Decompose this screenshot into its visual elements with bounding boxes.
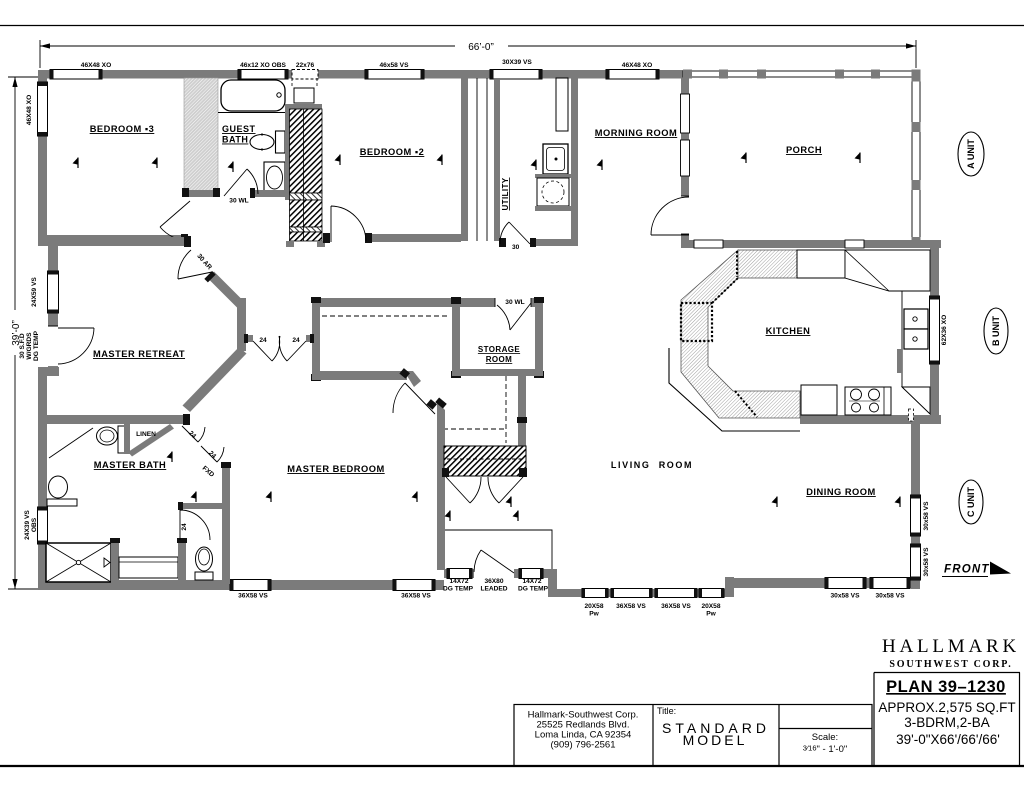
svg-text:24: 24 xyxy=(292,337,300,344)
svg-text:30x58 VS: 30x58 VS xyxy=(876,593,906,600)
svg-text:SOUTHWEST CORP.: SOUTHWEST CORP. xyxy=(889,659,1012,670)
svg-text:30 WL: 30 WL xyxy=(505,299,524,306)
svg-text:MASTER RETREAT: MASTER RETREAT xyxy=(93,349,185,359)
svg-text:ROOM: ROOM xyxy=(486,355,513,364)
svg-text:PORCH: PORCH xyxy=(786,145,822,155)
svg-text:20X58: 20X58 xyxy=(701,603,720,610)
svg-text:BATH: BATH xyxy=(222,135,248,145)
svg-text:66’-0”: 66’-0” xyxy=(468,42,494,53)
svg-text:C UNIT: C UNIT xyxy=(966,487,976,517)
svg-text:UTILITY: UTILITY xyxy=(501,177,510,210)
svg-text:Pw: Pw xyxy=(706,611,716,618)
svg-text:(909) 796-2561: (909) 796-2561 xyxy=(551,740,616,751)
svg-text:46x58 VS: 46x58 VS xyxy=(380,62,410,69)
svg-text:46X48 XO: 46X48 XO xyxy=(81,62,111,69)
svg-text:3-BDRM,2-BA: 3-BDRM,2-BA xyxy=(904,715,990,730)
svg-text:DG TEMP: DG TEMP xyxy=(33,330,40,361)
svg-text:24X59 VS: 24X59 VS xyxy=(31,277,38,307)
svg-text:Title:: Title: xyxy=(657,706,676,716)
svg-text:30 WL: 30 WL xyxy=(229,198,248,205)
svg-text:30X39 VS: 30X39 VS xyxy=(502,59,532,66)
svg-text:OBS: OBS xyxy=(31,517,38,532)
svg-text:GUEST: GUEST xyxy=(222,124,256,134)
svg-text:HALLMARK: HALLMARK xyxy=(882,636,1020,657)
svg-text:39'-0"X66'/66'/66': 39'-0"X66'/66'/66' xyxy=(896,732,1000,747)
svg-text:FRONT: FRONT xyxy=(944,564,990,576)
svg-text:KITCHEN: KITCHEN xyxy=(766,326,811,336)
svg-text:36X58 VS: 36X58 VS xyxy=(616,603,646,610)
svg-text:APPROX.2,575 SQ.FT: APPROX.2,575 SQ.FT xyxy=(878,700,1015,715)
svg-text:30x58 VS: 30x58 VS xyxy=(923,501,930,531)
svg-text:36X58 VS: 36X58 VS xyxy=(238,593,268,600)
svg-text:Scale:: Scale: xyxy=(812,732,838,743)
svg-text:30: 30 xyxy=(512,244,520,251)
svg-text:36X80: 36X80 xyxy=(484,578,503,585)
svg-text:MORNING ROOM: MORNING ROOM xyxy=(595,128,677,138)
svg-text:30 S.F.D: 30 S.F.D xyxy=(19,333,26,359)
svg-text:36X58 VS: 36X58 VS xyxy=(401,593,431,600)
svg-text:22x76: 22x76 xyxy=(296,62,315,69)
svg-text:14X72: 14X72 xyxy=(449,578,468,585)
svg-text:LIVING ROOM: LIVING ROOM xyxy=(611,460,693,470)
svg-text:BEDROOM ▪2: BEDROOM ▪2 xyxy=(360,147,425,157)
svg-text:24: 24 xyxy=(181,523,188,531)
svg-text:STORAGE: STORAGE xyxy=(478,345,520,354)
svg-text:BEDROOM ▪3: BEDROOM ▪3 xyxy=(90,124,155,134)
svg-text:14X72: 14X72 xyxy=(522,578,541,585)
svg-text:46X48 XO: 46X48 XO xyxy=(26,95,33,125)
svg-text:DG TEMP: DG TEMP xyxy=(518,586,549,593)
svg-text:DG TEMP: DG TEMP xyxy=(443,586,474,593)
svg-text:62X36 XO: 62X36 XO xyxy=(941,315,948,345)
svg-text:LEADED: LEADED xyxy=(480,586,507,593)
svg-text:B UNIT: B UNIT xyxy=(991,316,1001,346)
svg-text:DINING ROOM: DINING ROOM xyxy=(806,487,876,497)
svg-text:A UNIT: A UNIT xyxy=(966,139,976,169)
svg-text:30x58 VS: 30x58 VS xyxy=(923,547,930,577)
svg-text:MODEL: MODEL xyxy=(683,732,748,748)
svg-text:20X58: 20X58 xyxy=(584,603,603,610)
svg-text:MASTER BEDROOM: MASTER BEDROOM xyxy=(287,464,384,474)
svg-text:46X48 XO: 46X48 XO xyxy=(622,62,652,69)
svg-text:24X39 VS: 24X39 VS xyxy=(24,510,31,540)
svg-text:46x12 XO OBS: 46x12 XO OBS xyxy=(240,62,286,69)
svg-text:LINEN: LINEN xyxy=(136,431,156,438)
svg-text:MASTER BATH: MASTER BATH xyxy=(94,460,166,470)
svg-text:W/GRDS: W/GRDS xyxy=(26,332,33,360)
svg-text:30x58 VS: 30x58 VS xyxy=(831,593,861,600)
svg-text:Pw: Pw xyxy=(589,611,599,618)
svg-text:36X58 VS: 36X58 VS xyxy=(661,603,691,610)
svg-text:PLAN 39–1230: PLAN 39–1230 xyxy=(886,678,1006,696)
svg-text:24: 24 xyxy=(259,337,267,344)
